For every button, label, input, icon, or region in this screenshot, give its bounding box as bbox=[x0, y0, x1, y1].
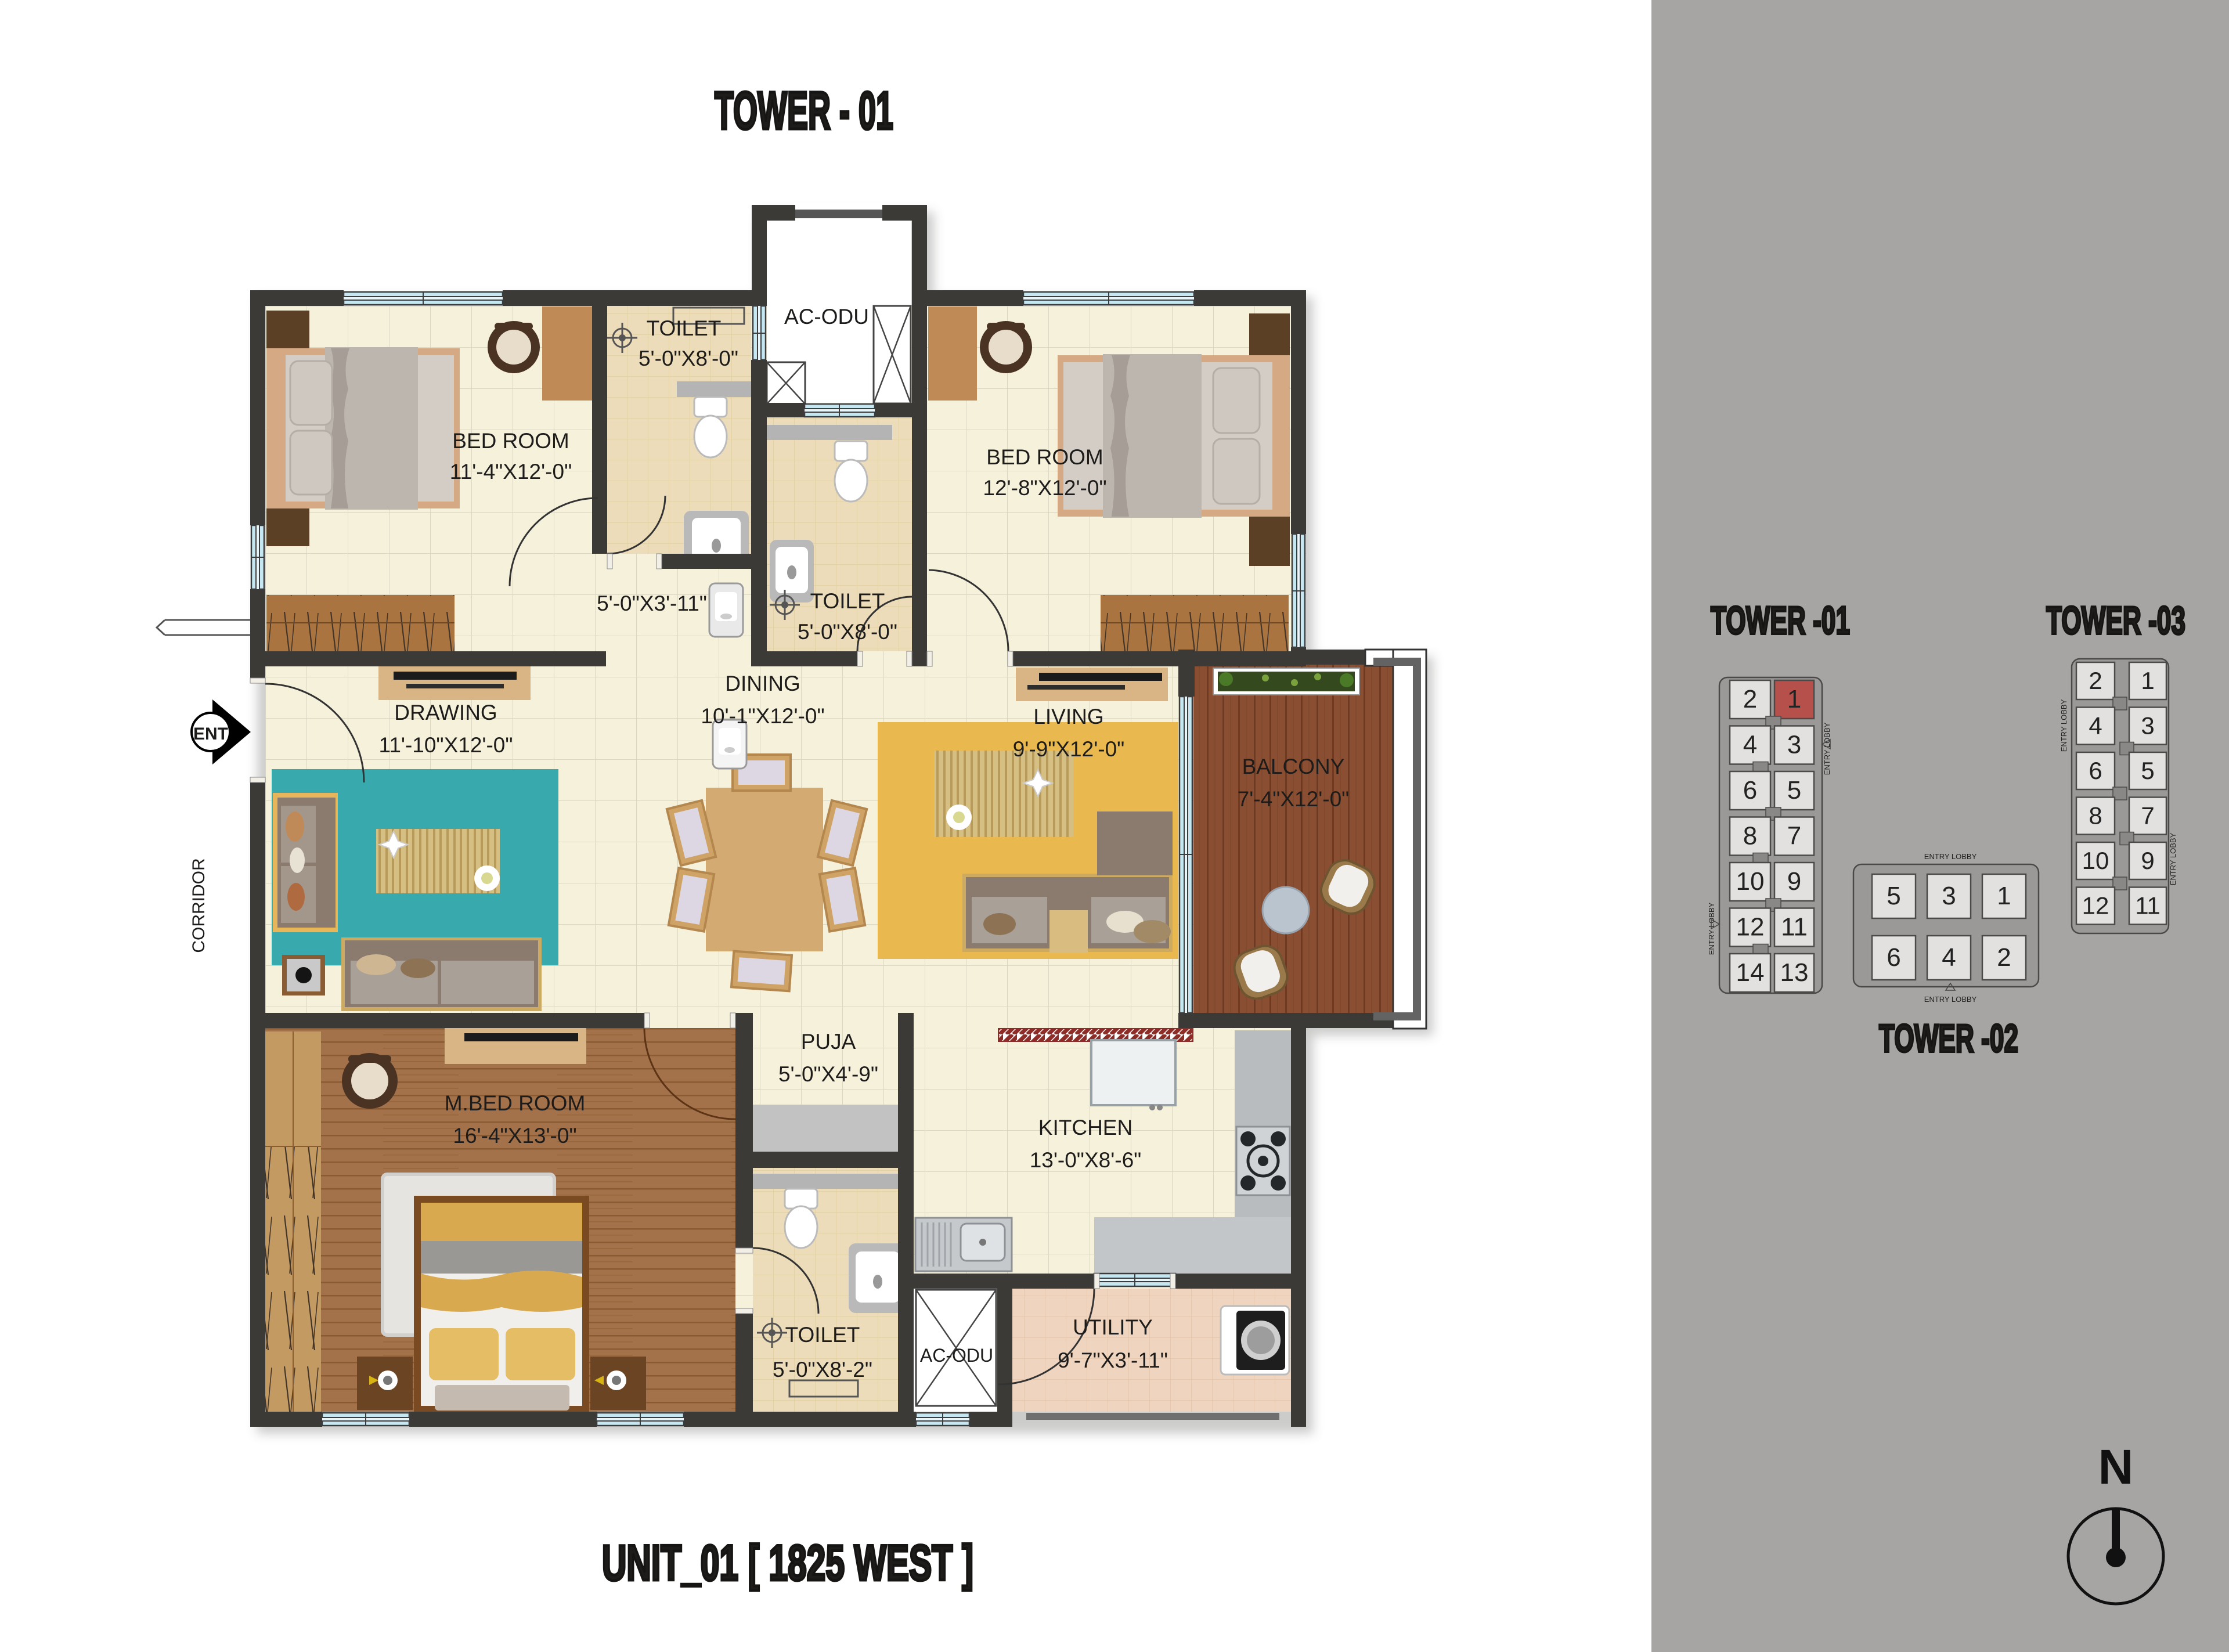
svg-text:5'-0"X8'-0": 5'-0"X8'-0" bbox=[639, 347, 738, 370]
svg-text:TOWER -02: TOWER -02 bbox=[1879, 1016, 2018, 1061]
svg-text:11'-4"X12'-0": 11'-4"X12'-0" bbox=[450, 460, 572, 484]
svg-text:6: 6 bbox=[1743, 776, 1757, 805]
svg-text:TOILET: TOILET bbox=[785, 1323, 860, 1347]
svg-text:2: 2 bbox=[1743, 685, 1757, 713]
svg-text:DRAWING: DRAWING bbox=[394, 701, 497, 724]
svg-text:ENTRY LOBBY: ENTRY LOBBY bbox=[1924, 852, 1977, 861]
svg-text:16'-4"X13'-0": 16'-4"X13'-0" bbox=[453, 1124, 576, 1148]
svg-text:TOILET: TOILET bbox=[647, 316, 722, 340]
svg-text:9'-9"X12'-0": 9'-9"X12'-0" bbox=[1013, 737, 1125, 761]
svg-text:KITCHEN: KITCHEN bbox=[1038, 1116, 1132, 1139]
svg-text:DINING: DINING bbox=[725, 672, 800, 695]
svg-text:13: 13 bbox=[1780, 958, 1809, 987]
svg-text:N: N bbox=[2098, 1440, 2134, 1494]
svg-text:ENTRY LOBBY: ENTRY LOBBY bbox=[1924, 995, 1977, 1004]
svg-text:M.BED ROOM: M.BED ROOM bbox=[445, 1091, 586, 1115]
svg-text:TOWER -03: TOWER -03 bbox=[2046, 598, 2185, 643]
svg-text:TOWER - 01: TOWER - 01 bbox=[715, 81, 893, 140]
svg-text:ENTRY LOBBY: ENTRY LOBBY bbox=[2169, 832, 2177, 885]
svg-text:UTILITY: UTILITY bbox=[1073, 1315, 1153, 1339]
svg-text:11'-10"X12'-0": 11'-10"X12'-0" bbox=[378, 733, 513, 757]
svg-text:PUJA: PUJA bbox=[801, 1030, 856, 1054]
svg-text:1: 1 bbox=[1997, 882, 2011, 910]
svg-text:ENTRY LOBBY: ENTRY LOBBY bbox=[2060, 699, 2068, 752]
svg-text:4: 4 bbox=[1942, 943, 1956, 972]
svg-text:7'-4"X12'-0": 7'-4"X12'-0" bbox=[1238, 787, 1350, 811]
svg-text:BED ROOM: BED ROOM bbox=[986, 445, 1103, 469]
svg-text:2: 2 bbox=[2089, 667, 2102, 694]
svg-text:5'-0"X3'-11": 5'-0"X3'-11" bbox=[597, 591, 707, 615]
svg-text:AC-ODU: AC-ODU bbox=[920, 1345, 993, 1366]
svg-text:7: 7 bbox=[1787, 822, 1801, 850]
svg-text:10'-1"X12'-0": 10'-1"X12'-0" bbox=[701, 704, 824, 728]
svg-text:6: 6 bbox=[1887, 943, 1900, 972]
svg-text:6: 6 bbox=[2089, 757, 2102, 784]
svg-text:9: 9 bbox=[2141, 847, 2154, 874]
svg-text:11: 11 bbox=[2135, 892, 2161, 919]
svg-text:5: 5 bbox=[1787, 776, 1801, 805]
svg-text:5'-0"X8'-2": 5'-0"X8'-2" bbox=[773, 1358, 872, 1382]
svg-text:2: 2 bbox=[1997, 943, 2011, 972]
svg-text:12'-8"X12'-0": 12'-8"X12'-0" bbox=[983, 476, 1106, 500]
svg-text:TOILET: TOILET bbox=[810, 589, 885, 613]
svg-text:ENT: ENT bbox=[193, 724, 228, 744]
svg-text:5'-0"X8'-0": 5'-0"X8'-0" bbox=[798, 620, 897, 644]
svg-text:7: 7 bbox=[2141, 802, 2154, 829]
svg-text:11: 11 bbox=[1781, 913, 1808, 942]
svg-text:14: 14 bbox=[1736, 958, 1765, 987]
svg-text:LIVING: LIVING bbox=[1033, 705, 1103, 728]
svg-text:13'-0"X8'-6": 13'-0"X8'-6" bbox=[1030, 1148, 1142, 1172]
svg-text:1: 1 bbox=[2141, 667, 2154, 694]
svg-text:12: 12 bbox=[1736, 913, 1765, 942]
svg-text:3: 3 bbox=[1942, 882, 1956, 910]
svg-text:CORRIDOR: CORRIDOR bbox=[189, 858, 208, 953]
svg-text:10: 10 bbox=[1736, 867, 1765, 896]
svg-text:4: 4 bbox=[1743, 731, 1757, 759]
svg-text:UNIT_01 [ 1825 WEST ]: UNIT_01 [ 1825 WEST ] bbox=[602, 1535, 973, 1591]
svg-text:AC-ODU: AC-ODU bbox=[784, 305, 869, 329]
svg-text:5: 5 bbox=[1887, 882, 1900, 910]
svg-text:BALCONY: BALCONY bbox=[1242, 755, 1345, 778]
svg-text:12: 12 bbox=[2082, 892, 2109, 919]
svg-text:9: 9 bbox=[1787, 867, 1801, 896]
svg-text:5'-0"X4'-9": 5'-0"X4'-9" bbox=[778, 1062, 878, 1086]
svg-text:9'-7"X3'-11": 9'-7"X3'-11" bbox=[1058, 1348, 1168, 1372]
svg-text:8: 8 bbox=[2089, 802, 2102, 829]
svg-text:8: 8 bbox=[1743, 822, 1757, 850]
svg-text:4: 4 bbox=[2089, 712, 2102, 740]
svg-text:3: 3 bbox=[2141, 712, 2154, 740]
svg-text:5: 5 bbox=[2141, 757, 2154, 784]
svg-text:3: 3 bbox=[1787, 731, 1801, 759]
svg-text:TOWER -01: TOWER -01 bbox=[1711, 598, 1850, 643]
svg-text:BED ROOM: BED ROOM bbox=[452, 429, 569, 453]
svg-text:10: 10 bbox=[2082, 847, 2109, 874]
svg-text:1: 1 bbox=[1787, 685, 1801, 713]
